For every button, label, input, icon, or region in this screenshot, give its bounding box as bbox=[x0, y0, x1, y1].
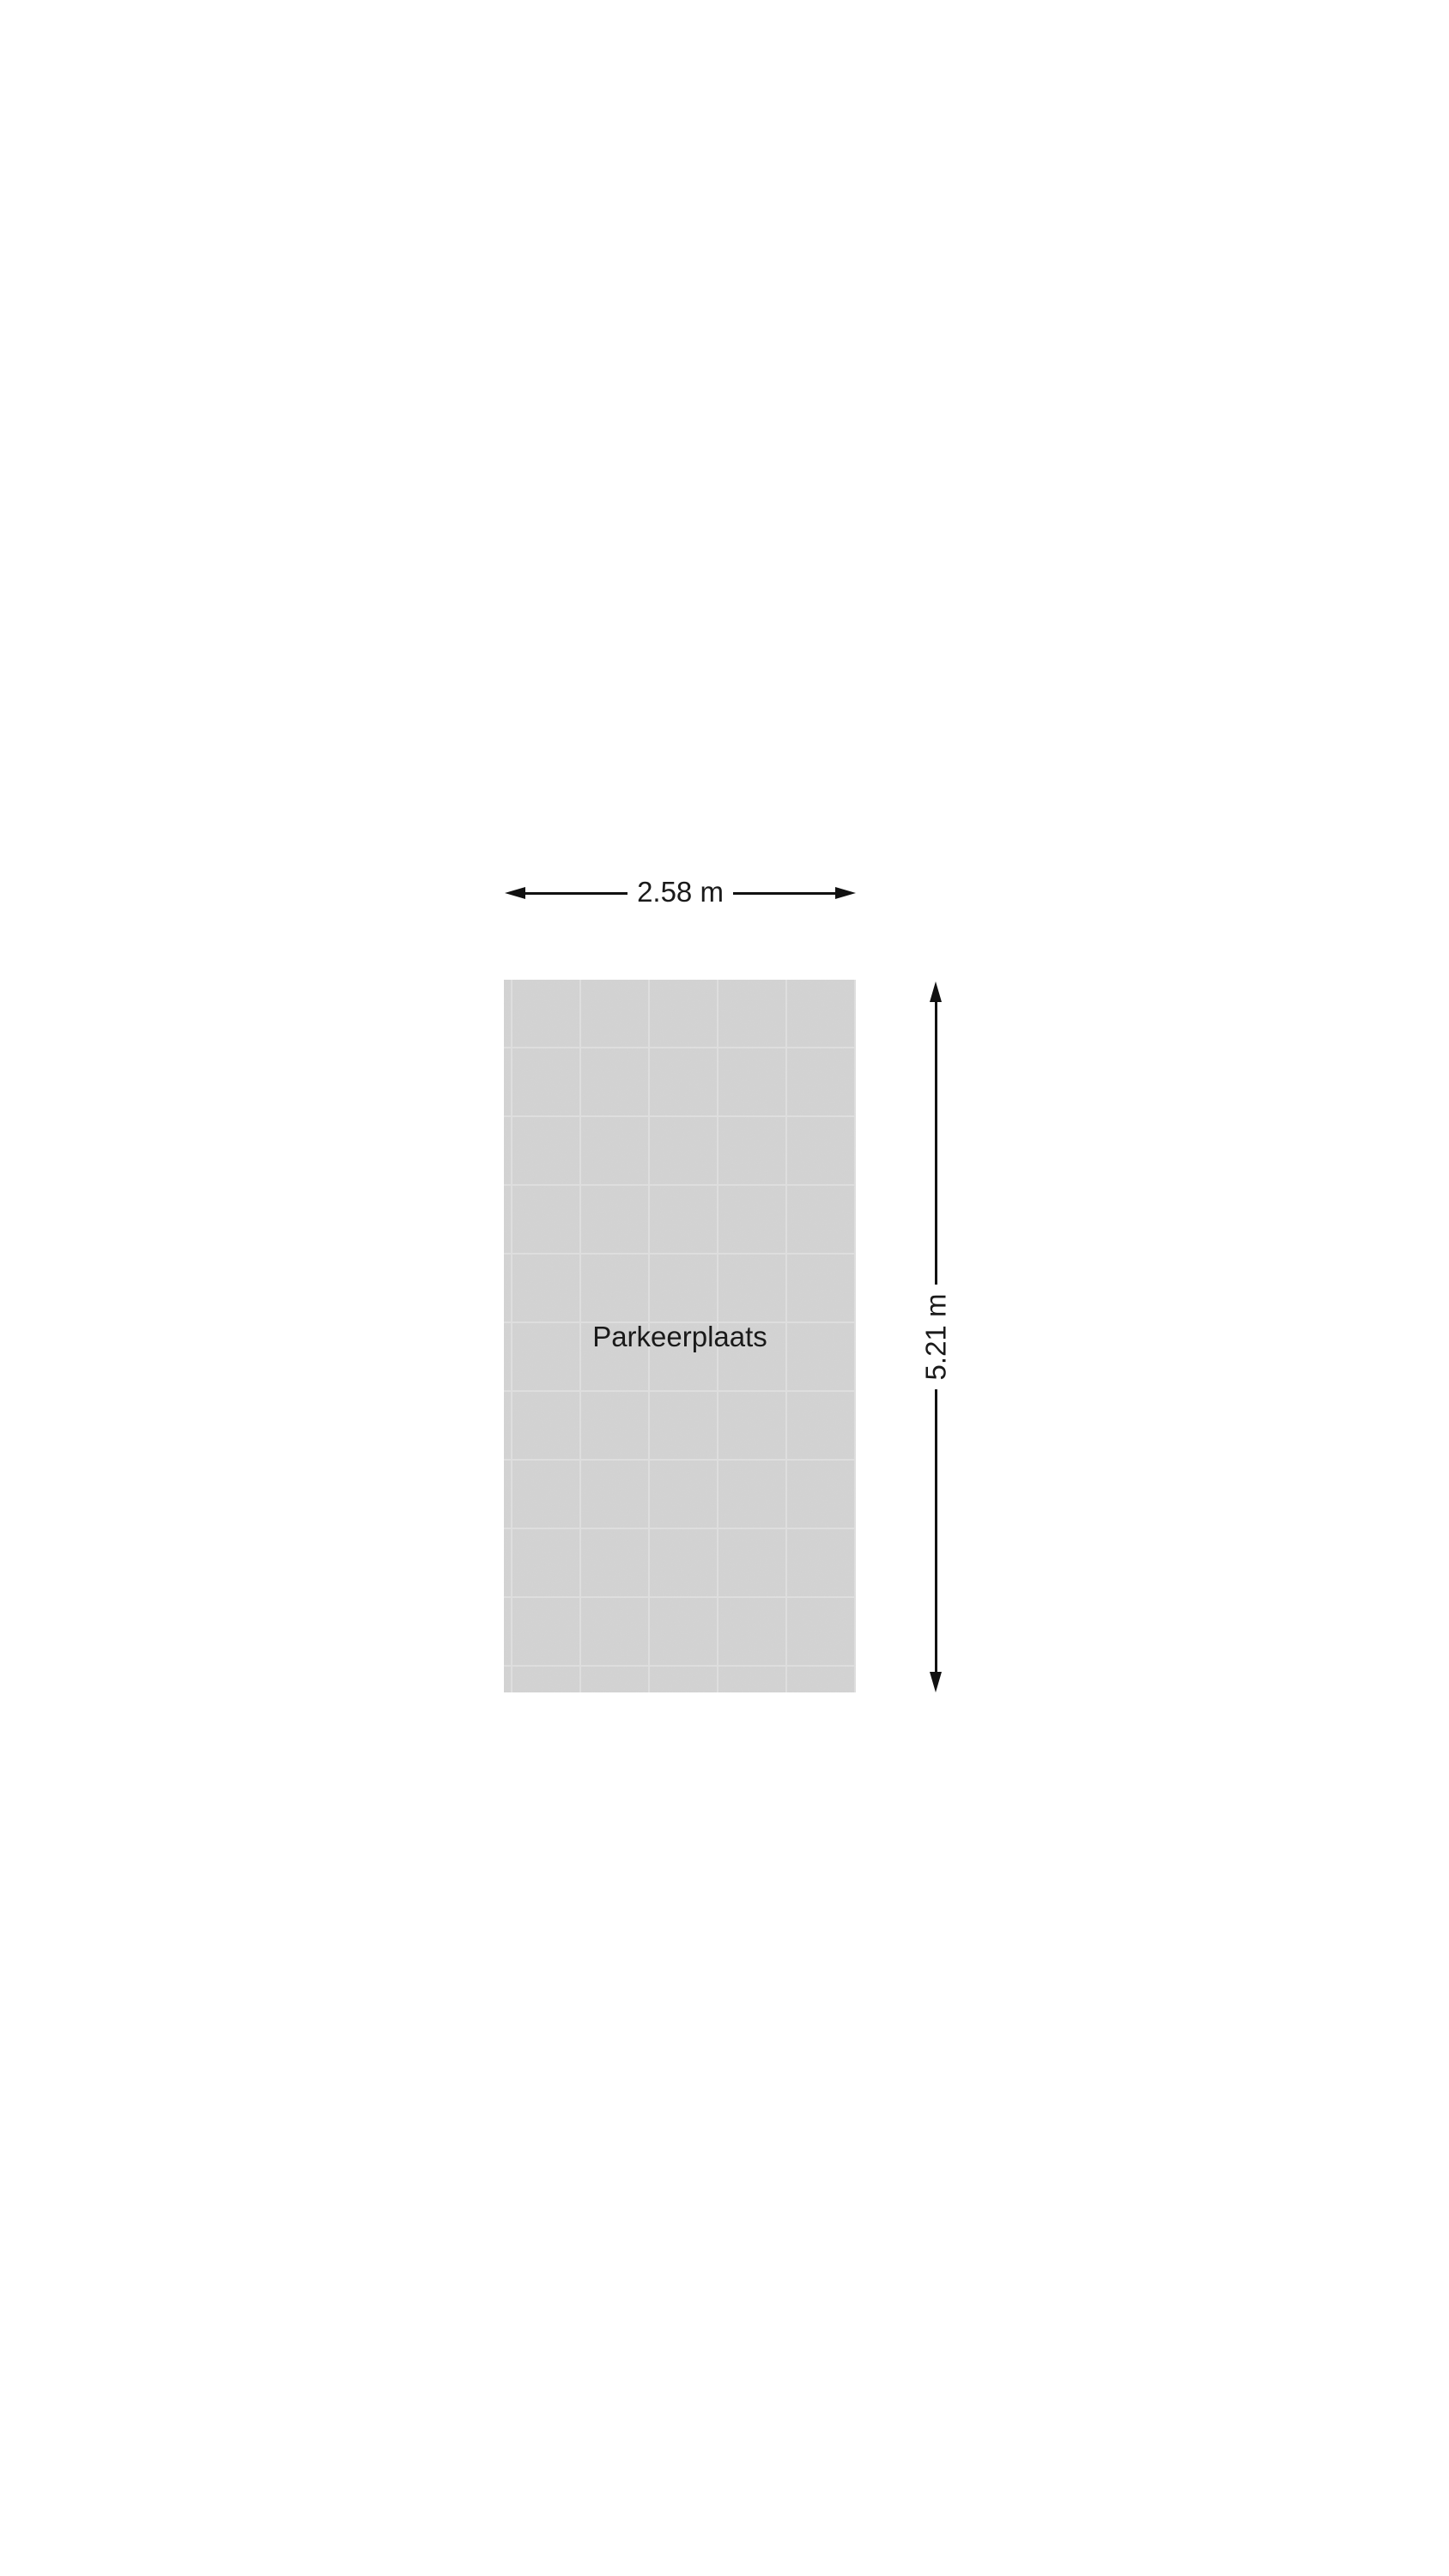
dimension-line-left bbox=[525, 892, 627, 895]
arrow-up-icon bbox=[930, 981, 942, 1002]
dimension-line-top bbox=[935, 1002, 937, 1285]
room-parkeerplaats: Parkeerplaats bbox=[504, 980, 856, 1692]
height-dimension: 5.21 m bbox=[929, 981, 943, 1692]
width-dimension: 2.58 m bbox=[505, 882, 856, 904]
height-dimension-label-wrap: 5.21 m bbox=[929, 1285, 943, 1389]
dimension-line-bottom bbox=[935, 1389, 937, 1672]
room-label: Parkeerplaats bbox=[592, 1322, 767, 1351]
height-dimension-label: 5.21 m bbox=[922, 1294, 950, 1381]
arrow-down-icon bbox=[930, 1672, 942, 1692]
arrow-right-icon bbox=[835, 887, 856, 899]
dimension-line-right bbox=[733, 892, 835, 895]
width-dimension-label: 2.58 m bbox=[627, 878, 733, 906]
floorplan-canvas: 2.58 m Parkeerplaats 5.21 m bbox=[0, 0, 1449, 2576]
arrow-left-icon bbox=[505, 887, 525, 899]
